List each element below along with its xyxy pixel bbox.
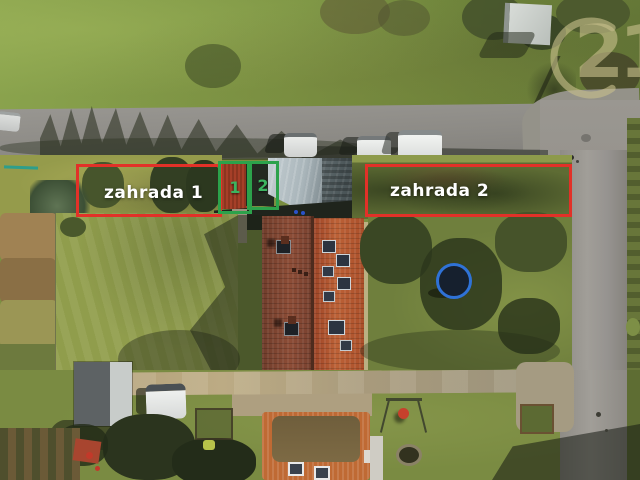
parked-car (0, 111, 21, 132)
roof-vents (292, 268, 296, 272)
plot1-label: 1 (229, 178, 240, 197)
skylight (284, 322, 299, 336)
field-dark-patch (185, 44, 241, 88)
skylight (323, 291, 335, 302)
plot2-label: 2 (257, 176, 268, 195)
trampoline (436, 263, 472, 299)
skylight (314, 466, 330, 480)
skylight (322, 266, 334, 277)
lower-house-flat-top (272, 416, 360, 462)
red-roof-corner (73, 438, 102, 463)
skylight (336, 254, 350, 267)
grey-shed (74, 362, 132, 426)
garden2-label: zahrada 2 (390, 181, 489, 201)
parked-car (284, 133, 317, 157)
tilled-garden-plot (0, 213, 58, 261)
mower-object (203, 440, 215, 450)
tilled-garden-plot (0, 258, 56, 303)
garden-tree (495, 212, 567, 272)
house-wall (370, 436, 383, 480)
skylight (328, 320, 345, 335)
verge-bush (626, 318, 640, 336)
blue-barrels (294, 210, 298, 214)
road-pothole (581, 134, 591, 142)
road-debris (596, 412, 601, 417)
red-flowers (86, 452, 93, 459)
skylight (322, 240, 336, 253)
plot2-outline-box: 2 (247, 161, 279, 210)
raised-bed (520, 404, 554, 434)
bare-tree (378, 0, 430, 36)
round-well (396, 444, 422, 466)
skylight (340, 340, 352, 351)
dry-grass-plot (0, 300, 58, 348)
skylight (288, 462, 304, 476)
chimney (288, 316, 296, 324)
chimney (281, 236, 289, 244)
garden1-label: zahrada 1 (104, 183, 203, 203)
lawn-bush (60, 217, 86, 237)
garden-bed-bottom (0, 428, 80, 480)
red-spring-toy (398, 408, 409, 419)
aerial-photo: zahrada 1 1 2 zahrada 2 21 (0, 0, 640, 480)
planter-frame (195, 408, 233, 440)
skylight (337, 277, 351, 290)
